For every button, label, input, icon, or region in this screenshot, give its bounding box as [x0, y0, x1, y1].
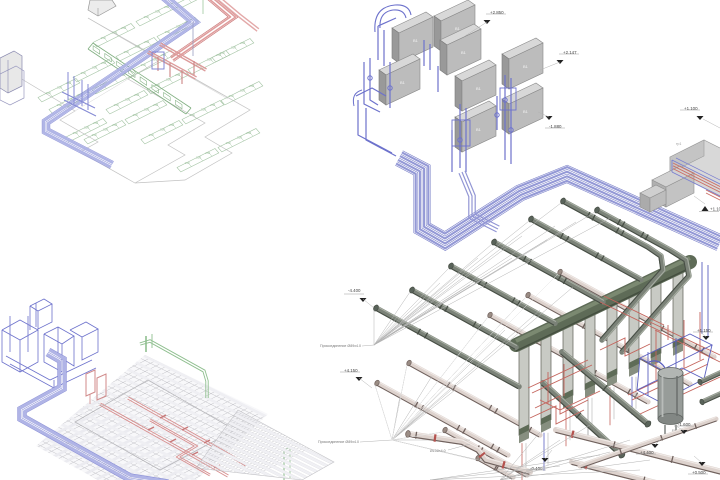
svg-text:250: 250: [103, 128, 108, 132]
svg-text:250: 250: [229, 94, 234, 98]
svg-text:250: 250: [210, 103, 215, 107]
svg-text:250: 250: [92, 66, 97, 70]
svg-text:-1.880: -1.880: [549, 124, 562, 129]
svg-text:250: 250: [205, 151, 210, 155]
svg-text:250: 250: [93, 121, 98, 125]
svg-text:+0.500: +0.500: [692, 470, 706, 475]
svg-text:250: 250: [237, 136, 242, 140]
svg-text:250: 250: [114, 103, 119, 107]
svg-text:250: 250: [240, 89, 245, 93]
svg-text:+2.147: +2.147: [563, 50, 577, 55]
svg-text:Присоединение Ø89x4.0: Присоединение Ø89x4.0: [320, 344, 361, 348]
svg-text:250: 250: [149, 133, 154, 137]
svg-text:250: 250: [101, 36, 106, 40]
svg-text:250: 250: [231, 46, 236, 50]
svg-text:+2.850: +2.850: [490, 10, 504, 15]
svg-text:250: 250: [92, 133, 97, 137]
svg-text:250: 250: [207, 58, 212, 62]
svg-text:250: 250: [246, 131, 251, 135]
svg-text:250: 250: [190, 113, 195, 117]
svg-text:B1: B1: [523, 64, 529, 69]
svg-text:250: 250: [165, 30, 170, 34]
svg-text:+1.150: +1.150: [697, 328, 711, 333]
svg-text:-1.600: -1.600: [678, 422, 691, 427]
svg-text:тр1: тр1: [676, 142, 681, 146]
svg-text:250: 250: [185, 161, 190, 165]
svg-text:B1: B1: [523, 109, 529, 114]
svg-text:250: 250: [164, 5, 169, 9]
svg-text:250: 250: [73, 131, 78, 135]
svg-text:250: 250: [144, 15, 149, 19]
svg-text:250: 250: [66, 81, 71, 85]
svg-text:250: 250: [226, 141, 231, 145]
svg-text:250: 250: [133, 113, 138, 117]
svg-text:250: 250: [121, 26, 126, 30]
svg-text:+4.400: +4.400: [640, 450, 654, 455]
svg-text:250: 250: [249, 84, 254, 88]
svg-text:250: 250: [46, 91, 51, 95]
svg-text:250: 250: [160, 128, 165, 132]
svg-text:250: 250: [81, 71, 86, 75]
svg-text:-4.400: -4.400: [348, 288, 361, 293]
svg-text:+1.100: +1.100: [684, 106, 698, 111]
svg-text:250: 250: [57, 86, 62, 90]
svg-text:250: 250: [144, 108, 149, 112]
svg-text:250: 250: [155, 10, 160, 14]
svg-text:250: 250: [57, 103, 62, 107]
svg-text:250: 250: [240, 41, 245, 45]
svg-text:250: 250: [144, 40, 149, 44]
svg-text:250: 250: [153, 103, 158, 107]
svg-text:+1.100: +1.100: [710, 207, 720, 212]
svg-text:250: 250: [84, 126, 89, 130]
svg-text:250: 250: [112, 31, 117, 35]
svg-text:250: 250: [166, 78, 171, 82]
svg-text:250: 250: [134, 93, 139, 97]
svg-text:250: 250: [175, 73, 180, 77]
svg-text:250: 250: [185, 0, 190, 1]
svg-text:B1: B1: [476, 127, 482, 132]
svg-text:250: 250: [135, 45, 140, 49]
svg-text:250: 250: [141, 63, 146, 67]
svg-text:B1: B1: [461, 50, 467, 55]
svg-text:B1: B1: [400, 80, 406, 85]
svg-text:Присоединение Ø89x4.0: Присоединение Ø89x4.0: [318, 440, 359, 444]
svg-text:250: 250: [201, 108, 206, 112]
svg-text:250: 250: [101, 61, 106, 65]
svg-text:250: 250: [169, 123, 174, 127]
svg-text:250: 250: [125, 98, 130, 102]
svg-text:B1: B1: [455, 26, 461, 31]
svg-text:B1: B1: [476, 86, 482, 91]
svg-text:B1: B1: [413, 38, 419, 43]
svg-text:250: 250: [196, 156, 201, 160]
svg-text:250: 250: [112, 123, 117, 127]
svg-text:+4.150: +4.150: [344, 368, 358, 373]
svg-text:250: 250: [220, 51, 225, 55]
svg-text:250: 250: [124, 50, 129, 54]
